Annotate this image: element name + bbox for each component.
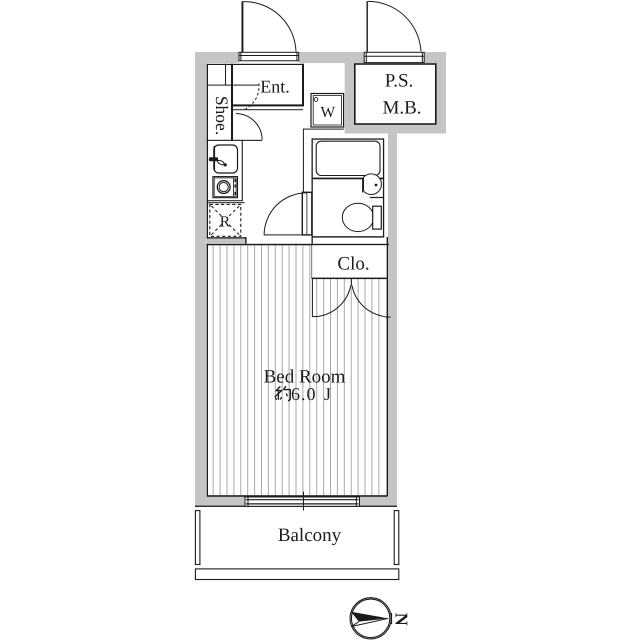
svg-text:6.0: 6.0 xyxy=(291,384,317,404)
svg-text:P.S.: P.S. xyxy=(385,71,414,92)
svg-text:N: N xyxy=(391,613,411,626)
svg-text:Clo.: Clo. xyxy=(337,254,369,275)
svg-text:Shoe.: Shoe. xyxy=(212,96,232,135)
svg-text:Ent.: Ent. xyxy=(260,77,290,97)
svg-text:M.B.: M.B. xyxy=(382,98,421,119)
svg-text:R: R xyxy=(220,214,231,231)
svg-text:Balcony: Balcony xyxy=(278,525,342,546)
svg-text:W: W xyxy=(320,104,335,121)
svg-text:J: J xyxy=(324,384,331,404)
